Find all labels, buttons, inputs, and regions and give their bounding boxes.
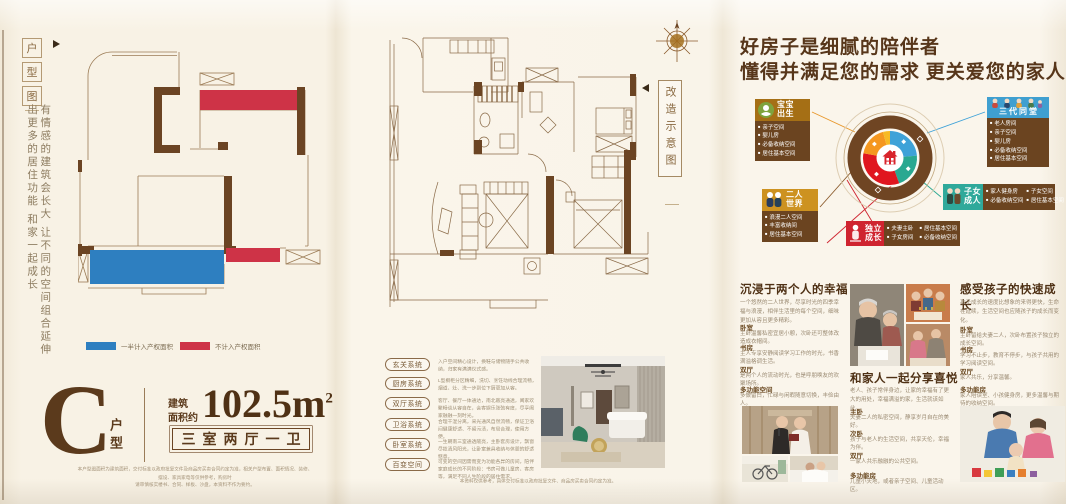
system-label: 百变空间 (385, 458, 430, 471)
system-desc: L型橱柜分区精细，洗切、烹饪动线合理流畅，烟道、灶、洗一步到位下厨更加从容。 (438, 378, 538, 393)
section-desc: 家人共乐，分享温馨。 (960, 374, 1064, 382)
system-label: 卧室系统 (385, 438, 430, 451)
system-label: 玄关系统 (385, 358, 430, 371)
compass-icon (654, 18, 700, 64)
system-desc: 入户空间精心设计，换鞋与储物随手公共收纳，归家有满满仪式感。 (438, 359, 538, 374)
section-desc: 学习不止步，教育不停步，与孩子共用的学习阅读空间。 (960, 352, 1064, 369)
stage-bullets: 亲子空间 婴儿房 必备收纳空间 居住基本空间 (755, 121, 810, 161)
column-intro: 老人、孩子常伴身边，让家的幸福有了更大的用处，幸福满溢的家，生活就该如此。 (850, 387, 952, 413)
family-playing-photo (960, 406, 1065, 482)
unit-letter: C (40, 376, 112, 464)
system-label: 双厅系统 (385, 397, 430, 410)
section-desc: 夫妻二人的私密空间，静享岁月自在的美好。 (850, 414, 954, 431)
system-label: 厨房系统 (385, 377, 430, 390)
growth-icon (848, 224, 863, 243)
column-intro: 孩子成长的速度比想象的来得更快，生命在延续，生活空间也应随孩子的成长而变化。 (960, 299, 1064, 325)
stage-baby-birth: 宝宝出生 亲子空间 婴儿房 必备收纳空间 居住基本空间 (755, 99, 810, 161)
section-desc: 主卧留给夫妻二人，次卧布置孩子独立的成长空间。 (960, 332, 1064, 349)
floorplan-tab: 户 型 图 (22, 38, 42, 111)
wedding-photo (742, 406, 838, 454)
family-cooking-photo (906, 324, 950, 366)
page-edge (2, 30, 4, 500)
area-prefix: 建筑 面积约 (168, 398, 198, 425)
stage-bullets: 家人健身房 子女空间 必备收纳空间 居住基本空间 (983, 184, 1055, 210)
stage-bullets: 老人房间 亲子空间 婴儿房 必备收纳空间 居住基本空间 (987, 118, 1049, 167)
teen-icon (945, 187, 962, 207)
section-desc: 儿童小天地，或者亲子空间、儿童活动区。 (850, 478, 954, 495)
area-value: 102.5m2 (202, 384, 333, 424)
stage-bullets: 夫妻主卧 居住基本空间 子女房间 必备收纳空间 (884, 221, 960, 246)
brochure-spread: 户 型 图 有情感的建筑会长大 让不同的空间组合延伸出更多的居住功能 和家一起成… (0, 0, 1066, 504)
divider (144, 388, 145, 462)
legend-swatch-red (180, 342, 210, 350)
renovation-tab: 改造示意图 (658, 80, 682, 177)
floorplan-renovation-diagram (378, 22, 670, 352)
system-label: 卫浴系统 (385, 418, 430, 431)
section-desc: 主卧温馨私密宜居小憩，次卧还可整体改造成衣帽间。 (740, 330, 842, 347)
unit-suffix: 户型 (106, 418, 125, 454)
legend-label: 不计入产权面积 (215, 341, 261, 351)
tab-char: 图 (22, 86, 42, 106)
baby-icon (757, 101, 775, 119)
arrow-left-icon (642, 84, 649, 92)
headline-line1: 好房子是细腻的陪伴者 (740, 32, 940, 59)
rooms-label: 三室两厅一卫 (172, 428, 310, 450)
system-desc: 合理干湿分离，采光通风自然流畅，保证卫浴间健康舒适、不留污渍，布局合理，使用方便… (438, 419, 538, 441)
system-desc: 客厅、餐厅一体通达，南北敞亮通透，阖家欢聚畅谈从容自在，会客娱乐张弛有度，尽享阖… (438, 398, 538, 420)
system-desc: 一生朝南三室通透敞亮，主卧套房设计，飘窗尽揽清风阳光，让卧室兼具收纳与休憩的舒适… (438, 439, 538, 461)
stage-independent-growth: 独立成长 夫妻主卧 居住基本空间 子女房间 必备收纳空间 (846, 221, 960, 246)
living-room-photo (541, 356, 665, 468)
stage-couple-world: 二人世界 浪漫二人空间 丰富收纳间 居住基本空间 (762, 189, 818, 242)
birthday-party-photo (906, 284, 950, 322)
middle-disclaimer: 本资料仅供参考，具体交付标准以政府批复文件、商品房买卖合同约定为准。 (418, 478, 657, 486)
column-title: 和家人一起分享喜悦 (850, 370, 958, 386)
section-desc: 主人专享安静阅读学习工作的时光，书香满溢格调生活。 (740, 350, 842, 367)
tab-char: 型 (22, 62, 42, 82)
couple-at-home-photo (790, 456, 838, 482)
tab-ornament (665, 204, 679, 205)
section-desc: 一家人共乐融融的公共空间。 (850, 458, 954, 466)
leisure-photo (742, 456, 788, 482)
left-disclaimer: 本户型图面积为建筑面积，交付标准以政府批复文件及商品房买卖合同约定为准，相关户型… (76, 466, 313, 489)
stage-grown-children: 子女成人 家人健身房 子女空间 必备收纳空间 居住基本空间 (943, 184, 1055, 210)
stage-three-generations: 三代同堂 老人房间 亲子空间 婴儿房 必备收纳空间 居住基本空间 (987, 97, 1049, 167)
stage-bullets: 浪漫二人空间 丰富收纳间 居住基本空间 (762, 211, 818, 242)
section-desc: 孩子与老人的生活空间，共享天伦，幸福为伴。 (850, 436, 954, 453)
couple-icon (764, 191, 784, 209)
legend-label: 一半计入产权面积 (121, 341, 173, 351)
column-title: 沉浸于两个人的幸福 (740, 281, 848, 297)
left-intro-text: 有情感的建筑会长大 让不同的空间组合延伸出更多的居住功能 和家一起成长 (25, 104, 51, 362)
column-intro: 一个悠然的二人世界，尽享时光的四季幸福与浪漫，相伴生活里的每个空间，细味更加从容… (740, 299, 842, 325)
tab-char: 户 (22, 38, 42, 58)
legend-swatch-blue (86, 342, 116, 350)
grandparents-photo (850, 284, 904, 366)
floorplan-c-diagram (78, 50, 330, 348)
headline-line2: 懂得并满足您的需求 更关爱您的家人 (740, 57, 1066, 84)
arrow-right-icon (53, 40, 60, 48)
